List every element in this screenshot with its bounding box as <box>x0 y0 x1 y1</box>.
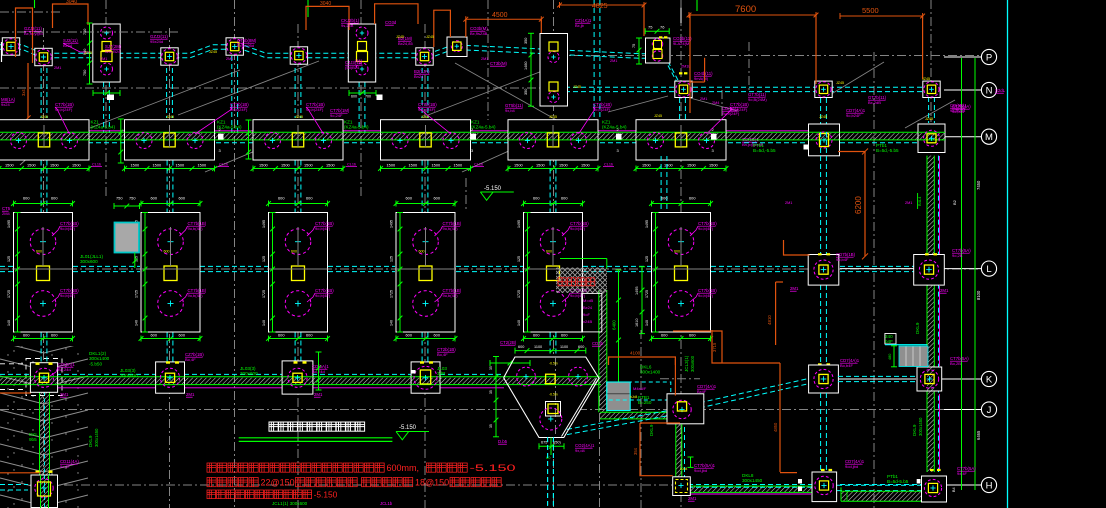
svg-text:(KZ4a-5.b4): (KZ4a-5.b4) <box>344 125 369 130</box>
svg-text:125: 125 <box>645 256 649 262</box>
svg-text:M=d5: M=d5 <box>583 298 594 303</box>
svg-text:140: 140 <box>7 320 11 326</box>
svg-text:DKL9: DKL9 <box>915 322 920 334</box>
svg-text:9o,b(24F): 9o,b(24F) <box>230 107 248 112</box>
svg-text:1500: 1500 <box>326 163 335 168</box>
svg-text:9o,24F: 9o,24F <box>330 113 343 118</box>
svg-text:600: 600 <box>151 332 158 337</box>
svg-text:35: 35 <box>489 424 493 428</box>
svg-text:2M1: 2M1 <box>314 392 323 397</box>
svg-text:3715: 3715 <box>712 342 717 352</box>
svg-text:600: 600 <box>533 196 540 201</box>
svg-text:2M1: 2M1 <box>940 288 949 293</box>
svg-text:1500: 1500 <box>198 163 207 168</box>
svg-text:D.b5: D.b5 <box>498 439 508 444</box>
svg-text:750: 750 <box>116 196 123 201</box>
svg-text:5500: 5500 <box>862 6 879 15</box>
svg-text:22@150: 22@150 <box>261 478 295 488</box>
svg-text:9x,b4: 9x,b4 <box>505 108 516 113</box>
svg-text:300x600: 300x600 <box>690 355 695 372</box>
svg-text:1500: 1500 <box>664 163 673 168</box>
svg-text:9s,24B: 9s,24B <box>341 23 354 28</box>
svg-text:300x1400: 300x1400 <box>89 356 110 361</box>
svg-text:(KZ4a-5.b4): (KZ4a-5.b4) <box>471 125 496 130</box>
svg-text:1500: 1500 <box>409 163 418 168</box>
svg-text:9x,d4: 9x,d4 <box>575 448 586 453</box>
svg-text:CL1b: CL1b <box>219 163 228 167</box>
svg-text:6200: 6200 <box>854 196 863 214</box>
svg-text:2M1: 2M1 <box>905 201 912 205</box>
svg-text:CL1b: CL1b <box>474 163 483 167</box>
svg-text:1500: 1500 <box>559 163 568 168</box>
svg-text:35: 35 <box>489 390 493 394</box>
svg-text:600: 600 <box>434 332 441 337</box>
svg-text:L: L <box>986 264 991 275</box>
svg-text:K: K <box>986 374 993 385</box>
svg-text:2M4: 2M4 <box>2 211 11 216</box>
svg-text:140: 140 <box>135 320 139 326</box>
svg-text:1500: 1500 <box>50 163 59 168</box>
svg-text:600: 600 <box>406 332 413 337</box>
svg-text:Bx,h=95d: Bx,h=95d <box>237 43 254 48</box>
svg-text:600: 600 <box>661 196 668 201</box>
svg-text:(5d)B24: (5d)B24 <box>345 65 360 70</box>
svg-text:JZ45: JZ45 <box>426 35 434 39</box>
svg-text:1495: 1495 <box>390 220 394 228</box>
svg-text:18@150: 18@150 <box>415 478 449 488</box>
svg-text:JZ45: JZ45 <box>40 115 48 119</box>
svg-text:CL1b: CL1b <box>347 163 356 167</box>
svg-text:4810: 4810 <box>767 315 772 325</box>
svg-text:95x24d: 95x24d <box>150 39 163 44</box>
svg-text:1500: 1500 <box>259 163 268 168</box>
svg-text:9o,b(4F): 9o,b(4F) <box>188 293 204 298</box>
svg-text:125: 125 <box>7 256 11 262</box>
svg-text:60: 60 <box>546 455 551 460</box>
svg-text:9x,4F: 9x,4F <box>957 471 968 476</box>
svg-text:125: 125 <box>517 256 521 262</box>
svg-text:600: 600 <box>546 250 552 254</box>
svg-text:H: H <box>986 480 993 491</box>
svg-text:1500: 1500 <box>281 163 290 168</box>
svg-text:Wm,B24: Wm,B24 <box>105 49 121 54</box>
svg-text:140: 140 <box>645 320 649 326</box>
svg-text:3040: 3040 <box>320 1 331 7</box>
svg-text:4850: 4850 <box>773 422 778 432</box>
svg-text:35: 35 <box>489 366 493 370</box>
svg-text:9o,b(4F): 9o,b(4F) <box>60 226 76 231</box>
svg-text:2M1: 2M1 <box>790 286 799 291</box>
svg-text:9o,b(24F): 9o,b(24F) <box>730 107 748 112</box>
svg-text:600: 600 <box>518 345 524 349</box>
svg-text:8100: 8100 <box>976 290 981 300</box>
svg-text:1500: 1500 <box>72 163 81 168</box>
svg-text:9b5: 9b5 <box>29 437 37 442</box>
svg-text:Bo,4F: Bo,4F <box>185 357 196 362</box>
svg-text:140: 140 <box>390 320 394 326</box>
svg-text:1725: 1725 <box>135 290 139 298</box>
svg-text:300x600: 300x600 <box>80 259 98 264</box>
svg-text:600: 600 <box>278 332 285 337</box>
svg-text:600: 600 <box>561 332 568 337</box>
svg-text:125: 125 <box>390 256 394 262</box>
svg-text:9o,b(4F): 9o,b(4F) <box>698 226 714 231</box>
svg-text:-5.150: -5.150 <box>484 186 502 192</box>
svg-text:300x600: 300x600 <box>240 371 258 376</box>
svg-text:CT2(2B): CT2(2B) <box>500 340 517 345</box>
svg-text:JZ45: JZ45 <box>396 35 404 39</box>
svg-text:600: 600 <box>689 332 696 337</box>
svg-text:1460: 1460 <box>524 62 528 70</box>
svg-text:4825: 4825 <box>592 3 608 10</box>
svg-text:1495: 1495 <box>7 220 11 228</box>
svg-text:2M1: 2M1 <box>785 201 792 205</box>
svg-text:Bx,h=y@d: Bx,h=y@d <box>24 31 43 36</box>
svg-text:Bo,24d: Bo,24d <box>58 367 71 372</box>
svg-text:600: 600 <box>179 332 186 337</box>
svg-text:6465: 6465 <box>976 430 981 440</box>
svg-text:x24B: x24B <box>583 319 592 324</box>
svg-text:9o,b(4F): 9o,b(4F) <box>315 226 331 231</box>
svg-text:1500: 1500 <box>514 163 523 168</box>
svg-text:1500: 1500 <box>642 163 651 168</box>
svg-text:9x,4F: 9x,4F <box>60 464 71 469</box>
svg-text:1725: 1725 <box>517 290 521 298</box>
svg-text:(50): (50) <box>554 441 561 445</box>
svg-text:JZ45: JZ45 <box>549 115 557 119</box>
svg-text:600: 600 <box>661 332 668 337</box>
svg-text:675: 675 <box>541 441 547 445</box>
svg-text:300x1450: 300x1450 <box>94 428 99 447</box>
svg-text:CO3d: CO3d <box>385 20 397 25</box>
svg-text:-0.5m: -0.5m <box>549 362 558 366</box>
svg-text:1100: 1100 <box>534 345 542 349</box>
svg-text:JCL3(1): JCL3(1) <box>684 355 689 372</box>
svg-text:1500: 1500 <box>304 163 313 168</box>
svg-text:DKL9: DKL9 <box>88 435 93 447</box>
svg-text:CL1b: CL1b <box>604 163 613 167</box>
svg-text:Bn24: Bn24 <box>414 74 424 79</box>
svg-text:600mm,: 600mm, <box>387 463 420 473</box>
svg-text:-0.5m: -0.5m <box>549 393 558 397</box>
svg-text:JCL1b: JCL1b <box>380 501 393 506</box>
svg-text:600: 600 <box>306 196 313 201</box>
svg-text:bJd4: bJd4 <box>680 467 687 471</box>
svg-text:1500: 1500 <box>387 163 396 168</box>
svg-text:1495: 1495 <box>645 220 649 228</box>
svg-text:9o,b(4F): 9o,b(4F) <box>443 226 459 231</box>
svg-text:1610: 1610 <box>635 319 639 327</box>
svg-text:JZ45: JZ45 <box>209 50 217 54</box>
svg-text:1500: 1500 <box>131 163 140 168</box>
svg-text:1100: 1100 <box>560 345 568 349</box>
svg-text:2M1: 2M1 <box>54 66 61 70</box>
svg-text:4500: 4500 <box>492 12 508 19</box>
svg-text:750: 750 <box>83 70 87 76</box>
svg-text:J: J <box>987 405 992 416</box>
svg-text:CL1b: CL1b <box>92 163 101 167</box>
svg-text:9o,b4F: 9o,b4F <box>836 257 849 262</box>
svg-text:CT3b(M): CT3b(M) <box>490 61 508 66</box>
svg-text:1495: 1495 <box>262 220 266 228</box>
svg-text:9o,b24F: 9o,b24F <box>846 113 861 118</box>
svg-text:750: 750 <box>83 29 87 35</box>
svg-text:2M1: 2M1 <box>60 392 69 397</box>
svg-text:JZ45: JZ45 <box>654 114 662 118</box>
svg-text:(KZ4a-5.b4): (KZ4a-5.b4) <box>91 125 116 130</box>
svg-text:2M1: 2M1 <box>481 57 488 61</box>
svg-text:7450: 7450 <box>976 180 981 190</box>
svg-text:600: 600 <box>434 196 441 201</box>
svg-text:(KZ4a-5.b4): (KZ4a-5.b4) <box>217 125 242 130</box>
svg-text:B2: B2 <box>952 199 957 205</box>
svg-text:N: N <box>986 85 993 96</box>
svg-text:1495: 1495 <box>517 220 521 228</box>
svg-text:9o,b(4F): 9o,b(4F) <box>443 293 459 298</box>
svg-text:3dR: 3dR <box>437 371 446 376</box>
svg-text:9o,bx4: 9o,bx4 <box>952 109 965 114</box>
svg-text:S2dL: S2dL <box>995 88 1006 93</box>
svg-text:600: 600 <box>306 332 313 337</box>
svg-text:Bx4F: Bx4F <box>697 389 707 394</box>
svg-text:1725: 1725 <box>645 290 649 298</box>
svg-text:9o,B(24M): 9o,B(24M) <box>748 97 767 102</box>
svg-text:354: 354 <box>633 447 638 455</box>
svg-text:1725: 1725 <box>390 290 394 298</box>
svg-text:125: 125 <box>262 256 266 262</box>
svg-text:1500: 1500 <box>536 163 545 168</box>
svg-text:JZ45: JZ45 <box>819 115 827 119</box>
svg-text:JZ45: JZ45 <box>925 117 933 121</box>
svg-text:600: 600 <box>533 332 540 337</box>
svg-text:B4: B4 <box>952 487 956 492</box>
svg-text:1500: 1500 <box>5 163 14 168</box>
svg-text:9LA24(M): 9LA24(M) <box>673 41 691 46</box>
svg-text:300x600: 300x600 <box>120 373 138 378</box>
svg-text:9o,b(24F): 9o,b(24F) <box>593 107 611 112</box>
svg-text:1725: 1725 <box>262 290 266 298</box>
svg-text:-5.b50: -5.b50 <box>89 362 102 367</box>
svg-text:B=5d-5.b5: B=5d-5.b5 <box>887 479 909 484</box>
svg-text:9o,b(4F): 9o,b(4F) <box>570 226 586 231</box>
svg-text:2M1: 2M1 <box>355 59 362 63</box>
svg-text:b4F: b4F <box>885 339 893 344</box>
svg-text:1500: 1500 <box>581 163 590 168</box>
svg-text:JZ45: JZ45 <box>836 81 844 85</box>
svg-text:1500: 1500 <box>687 163 696 168</box>
svg-text:600: 600 <box>51 332 58 337</box>
svg-text:600: 600 <box>51 196 58 201</box>
svg-text:600: 600 <box>179 196 186 201</box>
svg-text:9o,b(4F): 9o,b(4F) <box>188 226 204 231</box>
svg-text:4100: 4100 <box>630 351 641 356</box>
svg-text:JZ45: JZ45 <box>922 77 930 81</box>
svg-text:-5.150: -5.150 <box>314 490 338 500</box>
svg-text:1495: 1495 <box>635 287 639 295</box>
svg-text:B=5d,-5.b5: B=5d,-5.b5 <box>753 148 776 153</box>
svg-text:(KZ4a-5.b4): (KZ4a-5.b4) <box>602 125 627 130</box>
svg-text:Bx,2dB: Bx,2dB <box>868 100 881 105</box>
svg-text:2M1: 2M1 <box>226 57 233 61</box>
svg-text:9o,b(4F): 9o,b(4F) <box>60 293 76 298</box>
svg-text:JZ45: JZ45 <box>166 115 174 119</box>
svg-text:1500: 1500 <box>176 163 185 168</box>
svg-text:600: 600 <box>36 250 42 254</box>
svg-text:7600: 7600 <box>735 4 756 15</box>
svg-text:3040: 3040 <box>66 0 77 5</box>
svg-text:140: 140 <box>262 320 266 326</box>
svg-text:B=250: B=250 <box>638 400 652 405</box>
svg-text:Bx24,85: Bx24,85 <box>398 41 413 46</box>
svg-text:M: M <box>985 132 993 143</box>
svg-text:9mA(M): 9mA(M) <box>694 76 709 81</box>
svg-text:B=5d,-5.b5: B=5d,-5.b5 <box>876 148 899 153</box>
svg-text:9od,jbd: 9od,jbd <box>845 464 858 469</box>
svg-text:75: 75 <box>648 25 653 30</box>
svg-text:600: 600 <box>351 95 357 99</box>
svg-text:-5.150: -5.150 <box>470 463 516 473</box>
svg-text:600: 600 <box>291 250 297 254</box>
svg-text:Bx24: Bx24 <box>583 305 593 310</box>
svg-text:750: 750 <box>129 196 136 201</box>
svg-text:1500: 1500 <box>709 163 718 168</box>
svg-text:300x1400: 300x1400 <box>640 370 661 375</box>
svg-text:350: 350 <box>524 38 528 44</box>
svg-text:2M1: 2M1 <box>700 97 707 101</box>
svg-text:76: 76 <box>660 25 665 30</box>
svg-text:9o,b(4F): 9o,b(4F) <box>698 293 714 298</box>
svg-text:300x1450: 300x1450 <box>742 478 763 483</box>
svg-text:JZ45: JZ45 <box>84 51 92 55</box>
svg-text:600: 600 <box>164 250 170 254</box>
svg-text:600: 600 <box>674 250 680 254</box>
svg-text:2M1: 2M1 <box>610 59 617 63</box>
svg-text:600: 600 <box>578 345 584 349</box>
svg-text:2M1: 2M1 <box>100 57 107 61</box>
svg-text:75: 75 <box>632 44 636 48</box>
svg-text:DKL9: DKL9 <box>912 424 917 436</box>
svg-text:1500: 1500 <box>27 163 36 168</box>
svg-text:DKL9: DKL9 <box>649 424 654 436</box>
svg-text:-5.150: -5.150 <box>399 425 417 431</box>
svg-text:600: 600 <box>406 196 413 201</box>
svg-text:3x4: 3x4 <box>21 89 26 96</box>
svg-text:bJd4: bJd4 <box>630 395 637 399</box>
svg-text:9o,b(4F): 9o,b(4F) <box>315 293 331 298</box>
svg-text:2M1L: 2M1L <box>681 65 691 69</box>
svg-text:1500: 1500 <box>454 163 463 168</box>
svg-text:600: 600 <box>278 196 285 201</box>
svg-text:Bo,2B: Bo,2B <box>950 361 961 366</box>
svg-text:9oF: 9oF <box>583 312 590 317</box>
svg-text:1725: 1725 <box>7 290 11 298</box>
svg-text:300x1450: 300x1450 <box>918 417 923 436</box>
svg-text:600: 600 <box>23 196 30 201</box>
svg-text:P: P <box>986 52 992 63</box>
svg-text:Bx,9sZ4B: Bx,9sZ4B <box>470 31 488 36</box>
svg-text:600: 600 <box>151 196 158 201</box>
svg-text:2M1: 2M1 <box>186 392 195 397</box>
svg-text:2M1: 2M1 <box>688 496 697 501</box>
svg-text:600: 600 <box>561 196 568 201</box>
svg-text:JCL1(1) 300x600: JCL1(1) 300x600 <box>272 501 308 506</box>
svg-text:CD3b: CD3b <box>592 341 604 346</box>
svg-text:9x24: 9x24 <box>1 102 10 107</box>
svg-text:Bx,jb: Bx,jb <box>575 23 585 28</box>
svg-text:M4xd/F: M4xd/F <box>633 386 647 391</box>
svg-text:480: 480 <box>888 354 892 360</box>
svg-text:6400: 6400 <box>612 320 617 330</box>
svg-text:Bo,4F: Bo,4F <box>437 352 448 357</box>
svg-text:9o,2B: 9o,2B <box>952 253 963 258</box>
svg-text:600: 600 <box>419 250 425 254</box>
svg-text:700: 700 <box>365 95 371 99</box>
svg-text:Bo,b4F: Bo,b4F <box>840 363 853 368</box>
svg-text:1500: 1500 <box>153 163 162 168</box>
svg-text:JZ45: JZ45 <box>295 115 303 119</box>
svg-text:JZ45: JZ45 <box>573 85 581 89</box>
svg-text:9od,jbd: 9od,jbd <box>694 468 707 473</box>
svg-text:350: 350 <box>524 89 528 95</box>
svg-text:600: 600 <box>689 196 696 201</box>
svg-text:140: 140 <box>517 320 521 326</box>
svg-text:1500: 1500 <box>432 163 441 168</box>
svg-text:600: 600 <box>23 332 30 337</box>
svg-text:2M4: 2M4 <box>712 101 719 105</box>
